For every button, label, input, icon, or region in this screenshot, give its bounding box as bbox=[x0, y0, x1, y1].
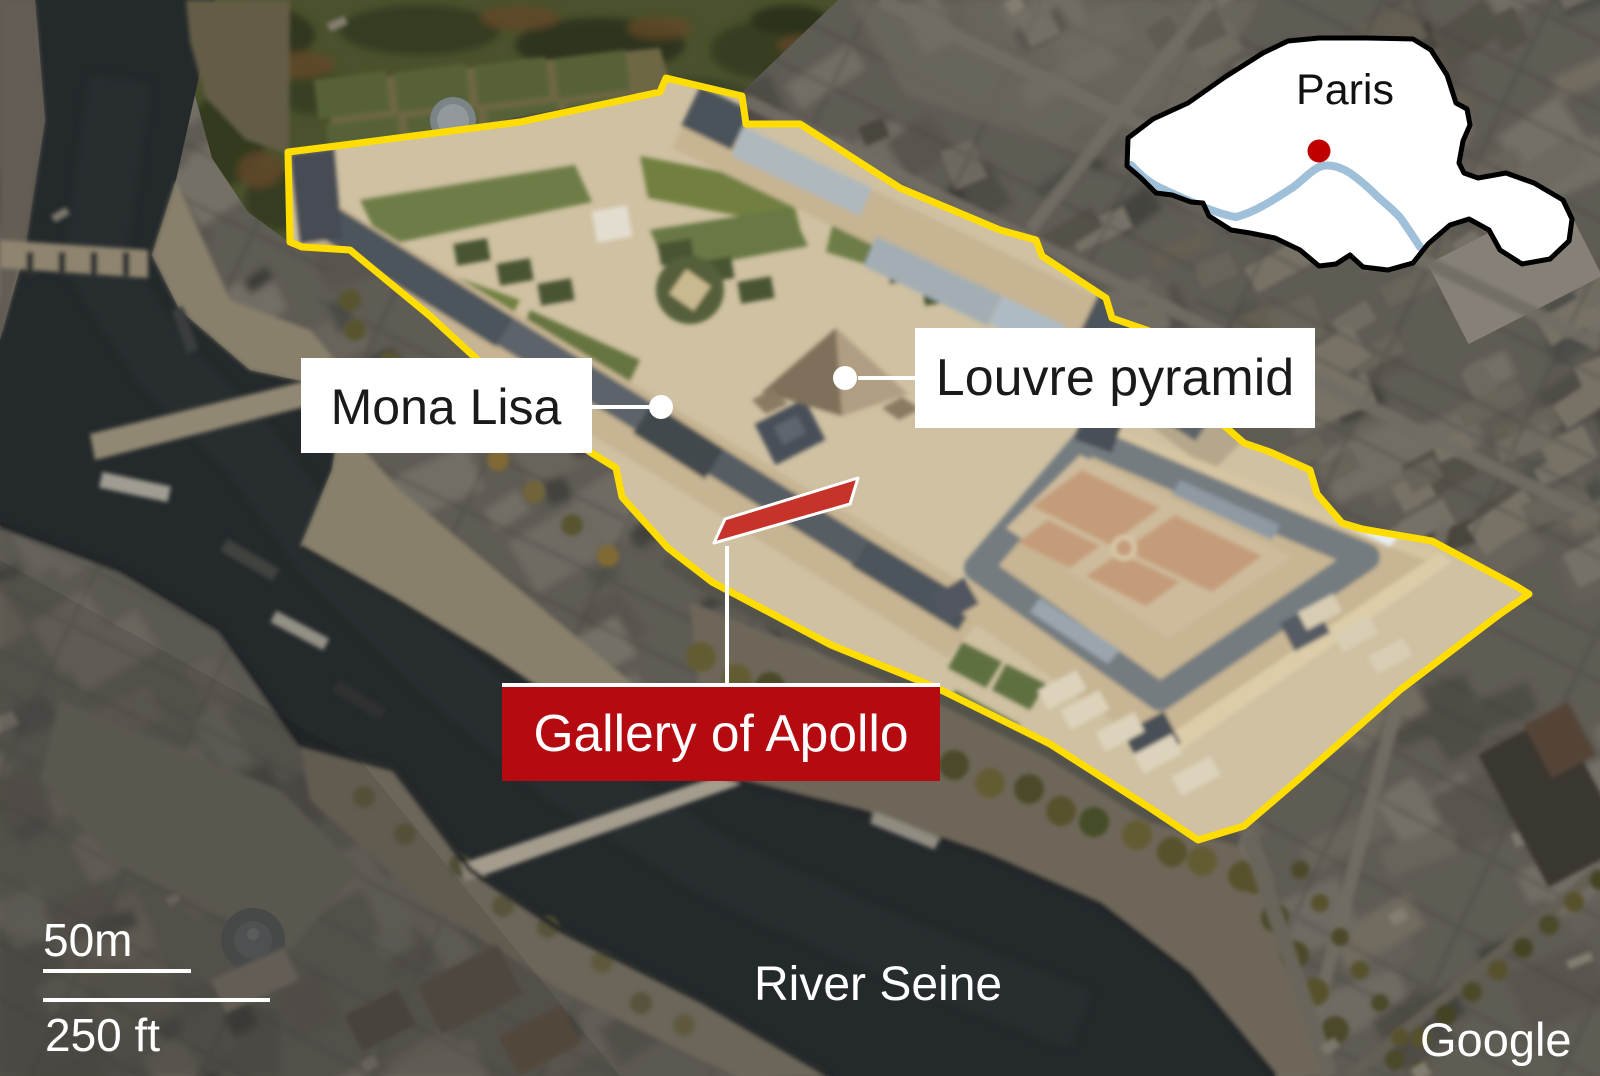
svg-text:Mona Lisa: Mona Lisa bbox=[331, 379, 562, 435]
svg-text:Louvre pyramid: Louvre pyramid bbox=[936, 349, 1294, 407]
svg-text:Paris: Paris bbox=[1296, 66, 1394, 114]
svg-text:Gallery of Apollo: Gallery of Apollo bbox=[533, 704, 908, 762]
svg-text:50m: 50m bbox=[43, 914, 132, 966]
svg-text:Google: Google bbox=[1420, 1013, 1572, 1066]
svg-text:250 ft: 250 ft bbox=[45, 1009, 160, 1061]
svg-text:River Seine: River Seine bbox=[754, 958, 1002, 1011]
